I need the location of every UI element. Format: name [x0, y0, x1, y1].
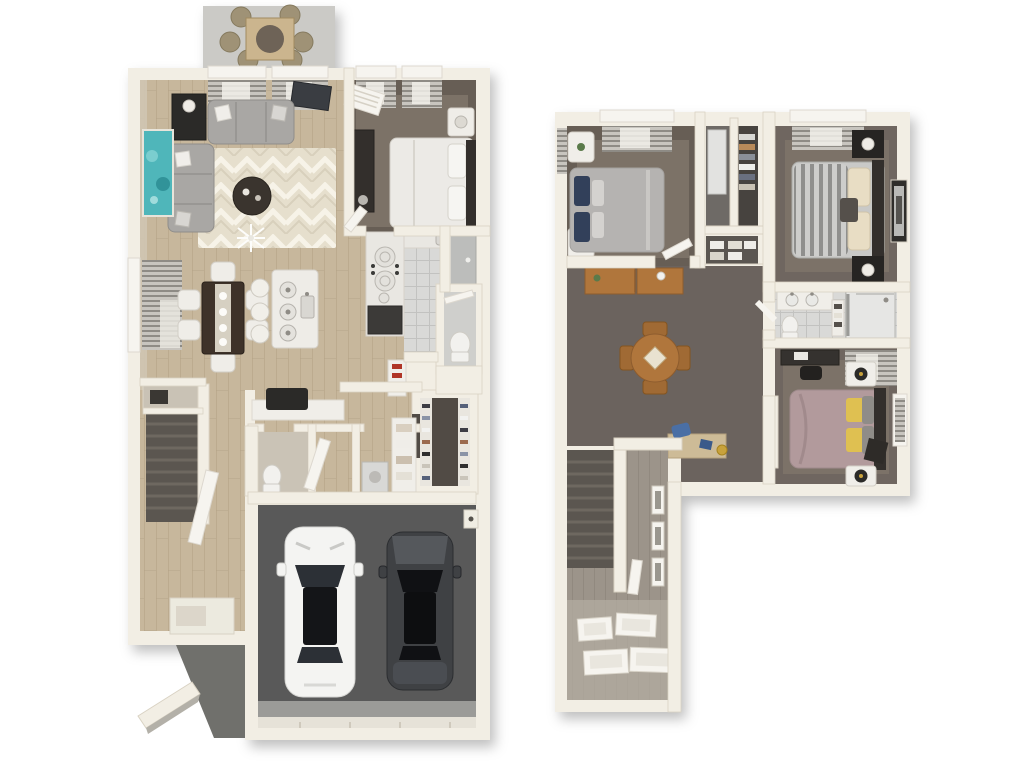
desk-chair — [266, 388, 308, 410]
bedroom-2 — [557, 110, 697, 266]
hall-wall-frames — [652, 486, 664, 586]
bedroom-1 — [344, 66, 476, 252]
side-window-blinds — [557, 128, 567, 174]
stairwell — [567, 438, 682, 700]
black-car — [379, 532, 461, 690]
first-floor — [128, 5, 490, 738]
staircase-down — [567, 450, 614, 568]
bed-white — [390, 138, 476, 228]
wall-art-teal — [143, 130, 173, 216]
vanity — [777, 290, 833, 310]
refrigerator — [368, 306, 402, 334]
garage — [258, 505, 478, 728]
closet-mirror — [708, 130, 726, 194]
desk-chair — [800, 366, 822, 380]
staircase — [146, 412, 198, 522]
bathroom-2 — [775, 290, 897, 340]
side-window-blinds — [895, 398, 905, 442]
bedroom-3 — [775, 110, 907, 284]
front-porch — [138, 645, 245, 738]
shower — [448, 230, 476, 288]
coffee-table — [233, 177, 271, 215]
study-desk — [781, 350, 839, 365]
bed-gray — [570, 168, 664, 252]
kitchen-island — [251, 270, 318, 348]
white-car — [277, 527, 363, 697]
bed-mauve — [790, 388, 888, 470]
walk-in-closet — [412, 390, 478, 494]
hall-closets — [700, 118, 766, 274]
tv — [291, 81, 332, 110]
bed-striped — [792, 160, 884, 260]
second-floor — [557, 110, 910, 712]
floor-plan-page — [0, 0, 1024, 768]
table-lamp — [183, 100, 195, 112]
loft-dressers — [585, 268, 683, 294]
floor-plan-canvas — [0, 0, 1024, 768]
